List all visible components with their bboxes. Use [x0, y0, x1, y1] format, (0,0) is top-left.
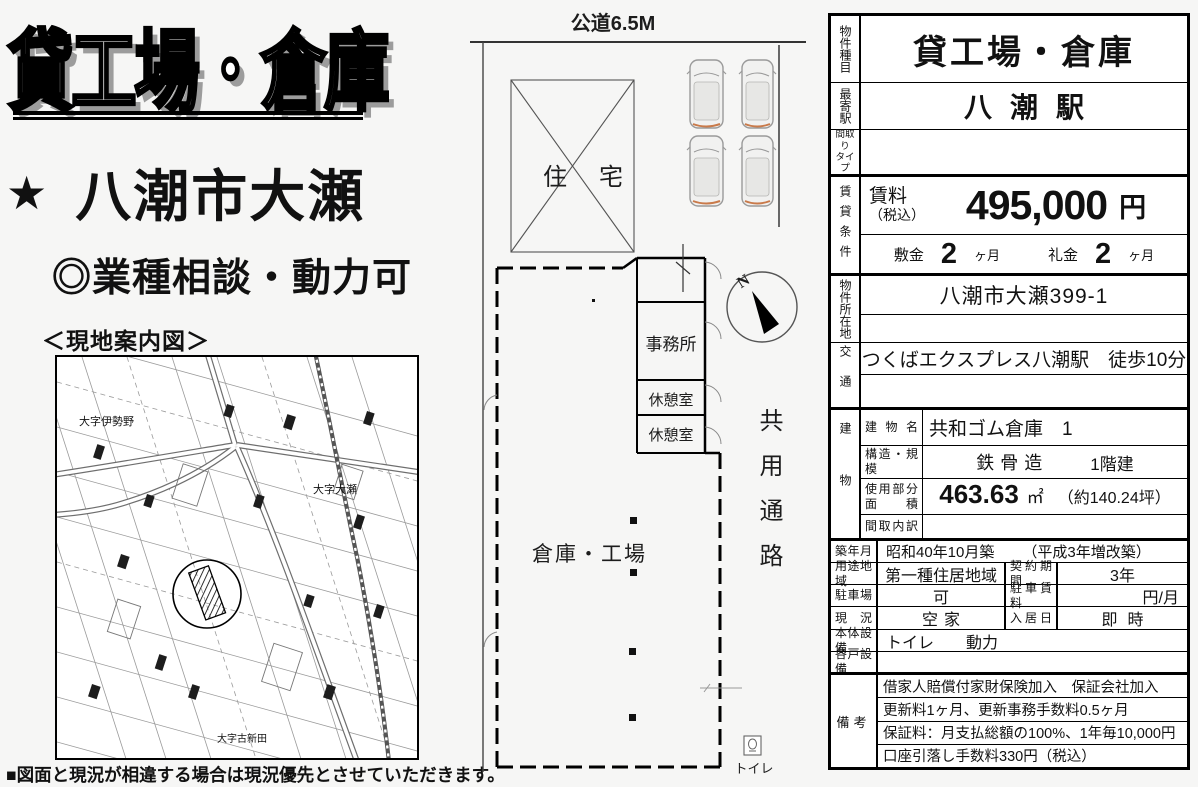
deposit-unit: ヶ月 — [974, 245, 1000, 264]
parking-label: 駐車場 — [831, 585, 878, 606]
row-lease-terms: 賃貸条件 賃料 （税込） 495,000 円 敷金 2 ヶ月 礼金 2 ヶ月 — [831, 174, 1187, 273]
layout-value — [923, 515, 1187, 538]
row-built-date: 築年月 昭和40年10月築 （平成3年増改築） — [831, 538, 1187, 562]
area-unit: ㎡ — [1027, 483, 1044, 508]
nearest-station-label: 最寄駅 — [839, 88, 851, 124]
layout-label: 間取内訳 — [861, 515, 923, 538]
property-building-hatched — [189, 566, 226, 620]
property-type-value: 貸工場・倉庫 — [861, 16, 1187, 82]
location-headline: ★ 八潮市大瀬 — [6, 152, 365, 233]
address-value: 八潮市大瀬399-1 — [861, 276, 1187, 314]
remark-line: 借家人賠償付家財保険加入 保証会社加入 — [878, 675, 1187, 697]
area-tsubo: （約140.24坪） — [1058, 484, 1171, 508]
building-structure-label: 構造・規模 — [861, 446, 923, 478]
area-value: 463.63 — [939, 479, 1019, 510]
map-label-isesino: 大字伊勢野 — [79, 414, 134, 428]
row-remarks: 備考 借家人賠償付家財保険加入 保証会社加入 更新料1ヶ月、更新事務手数料0.5… — [831, 672, 1187, 767]
building-area-label: 使用部分 面積 — [861, 479, 923, 514]
unit-equipment-value — [878, 652, 1187, 672]
rent-subrow: 賃料 （税込） 495,000 円 — [861, 177, 1187, 234]
property-marker — [173, 560, 241, 628]
building-structure-subrow: 構造・規模 鉄骨造 1階建 — [861, 445, 1187, 478]
key-money-value: 2 — [1091, 238, 1115, 271]
access-label: 交通 — [839, 345, 851, 405]
rent-label: 賃料 （税込） — [861, 187, 925, 223]
nearest-station-value: 八潮駅 — [861, 83, 1187, 129]
row-access: 交通 つくばエクスプレス八潮駅 徒歩10分 — [831, 342, 1187, 407]
road-width-label: 公道6.5M — [553, 7, 673, 36]
key-money-unit: ヶ月 — [1128, 245, 1154, 264]
site-map: 大字伊勢野 大字大瀬 大字古新田 — [55, 355, 419, 760]
floors-value: 1階建 — [1090, 450, 1133, 475]
built-date-value: 昭和40年10月築 — [886, 541, 994, 562]
rent-unit: 円 — [1119, 186, 1146, 225]
access-extra — [861, 374, 1187, 407]
structure-value: 鉄骨造 — [976, 449, 1048, 475]
remark-line: 保証料：月支払総額の100%、1年毎10,000円 — [878, 721, 1187, 744]
site-map-svg: 大字伊勢野 大字大瀬 大字古新田 — [57, 357, 419, 760]
feature-headline: ◎業種相談・動力可 — [52, 247, 412, 303]
row-status-movein: 現況 空家 入居日 即時 — [831, 606, 1187, 629]
parked-vans — [687, 60, 776, 206]
building-name-subrow: 建物名 共和ゴム倉庫 1 — [861, 410, 1187, 445]
star-icon: ★ — [6, 166, 47, 220]
row-zoning-contract: 用途地域 第一種住居地域 契約期間 3年 — [831, 562, 1187, 584]
map-label-koshinden: 大字古新田 — [217, 732, 267, 745]
zoning-label: 用途地域 — [831, 563, 878, 584]
deposit-value: 2 — [937, 238, 961, 271]
access-value: つくばエクスプレス八潮駅 徒歩10分 — [861, 343, 1187, 374]
parking-fee-label: 駐車賃料 — [1006, 585, 1058, 606]
shared-passage-label: 共用通路 — [751, 408, 786, 588]
toilet-label: トイレ — [730, 758, 778, 777]
map-label-oze: 大字大瀬 — [313, 482, 357, 496]
building-label: 建物 — [839, 422, 851, 526]
row-madori-type: 間取り タイプ — [831, 129, 1187, 174]
madori-type-label: 間取り タイプ — [831, 129, 859, 175]
footer-disclaimer: ■図面と現況が相違する場合は現況優先とさせていただきます。 — [6, 762, 505, 787]
door-swings — [484, 262, 742, 692]
building-layout-subrow: 間取内訳 — [861, 514, 1187, 538]
remarks-label: 備考 — [831, 675, 878, 767]
row-nearest-station: 最寄駅 八潮駅 — [831, 82, 1187, 129]
van-icon — [687, 136, 726, 206]
toilet-icon — [744, 736, 761, 755]
row-main-equipment: 本体設備 トイレ 動力 — [831, 629, 1187, 651]
rent-amount: 495,000 — [966, 182, 1107, 229]
van-icon — [739, 136, 776, 206]
row-unit-equipment: 各戸設備 — [831, 651, 1187, 672]
move-in-value: 即時 — [1058, 607, 1187, 629]
van-icon — [687, 60, 726, 128]
unit-equipment-label: 各戸設備 — [831, 652, 878, 672]
building-area-subrow: 使用部分 面積 463.63 ㎡ （約140.24坪） — [861, 478, 1187, 514]
lease-terms-label: 賃貸条件 — [839, 185, 851, 265]
van-icon — [739, 60, 776, 128]
address-extra — [861, 314, 1187, 342]
status-value: 空家 — [878, 607, 1006, 629]
property-spec-table: 物件種目 貸工場・倉庫 最寄駅 八潮駅 間取り タイプ 賃貸条件 賃料 （税込） — [828, 13, 1190, 770]
page-title: 貸工場・倉庫 — [8, 2, 387, 129]
warehouse-label: 倉庫・工場 — [517, 538, 662, 568]
remark-line: 口座引落し手数料330円（税込） — [878, 744, 1187, 767]
break-line-symbol — [676, 244, 690, 292]
madori-type-value — [861, 130, 1187, 174]
address-label: 物件所在地 — [839, 279, 851, 339]
row-building: 建物 建物名 共和ゴム倉庫 1 構造・規模 鉄骨造 1階建 使用部分 面積 46… — [831, 407, 1187, 538]
row-parking: 駐車場 可 駐車賃料 円/月 — [831, 584, 1187, 606]
building-name-label: 建物名 — [861, 410, 923, 445]
move-in-label: 入居日 — [1006, 607, 1058, 629]
map-caption: ＜現地案内図＞ — [42, 322, 210, 356]
rest-room-1-label: 休憩室 — [637, 389, 705, 410]
zoning-value: 第一種住居地域 — [878, 563, 1006, 584]
property-type-label: 物件種目 — [839, 25, 851, 73]
parking-value: 可 — [878, 585, 1006, 606]
house-label: 住宅 — [511, 157, 634, 192]
main-equipment-value: トイレ 動力 — [878, 630, 1187, 651]
building-name-value: 共和ゴム倉庫 1 — [923, 410, 1187, 445]
key-money-label: 礼金 — [1048, 244, 1078, 265]
deposit-label: 敷金 — [894, 244, 924, 265]
office-room-label: 事務所 — [637, 330, 705, 355]
parking-fee-value: 円/月 — [1058, 585, 1187, 606]
location-text: 八潮市大瀬 — [75, 152, 365, 233]
remark-line: 更新料1ヶ月、更新事務手数料0.5ヶ月 — [878, 697, 1187, 720]
title-underline — [13, 111, 363, 120]
pillars — [592, 299, 637, 721]
deposit-keymoney-subrow: 敷金 2 ヶ月 礼金 2 ヶ月 — [861, 234, 1187, 273]
row-property-type: 物件種目 貸工場・倉庫 — [831, 16, 1187, 82]
contract-value: 3年 — [1058, 563, 1187, 584]
row-address: 物件所在地 八潮市大瀬399-1 — [831, 273, 1187, 342]
rest-room-2-label: 休憩室 — [637, 424, 705, 445]
